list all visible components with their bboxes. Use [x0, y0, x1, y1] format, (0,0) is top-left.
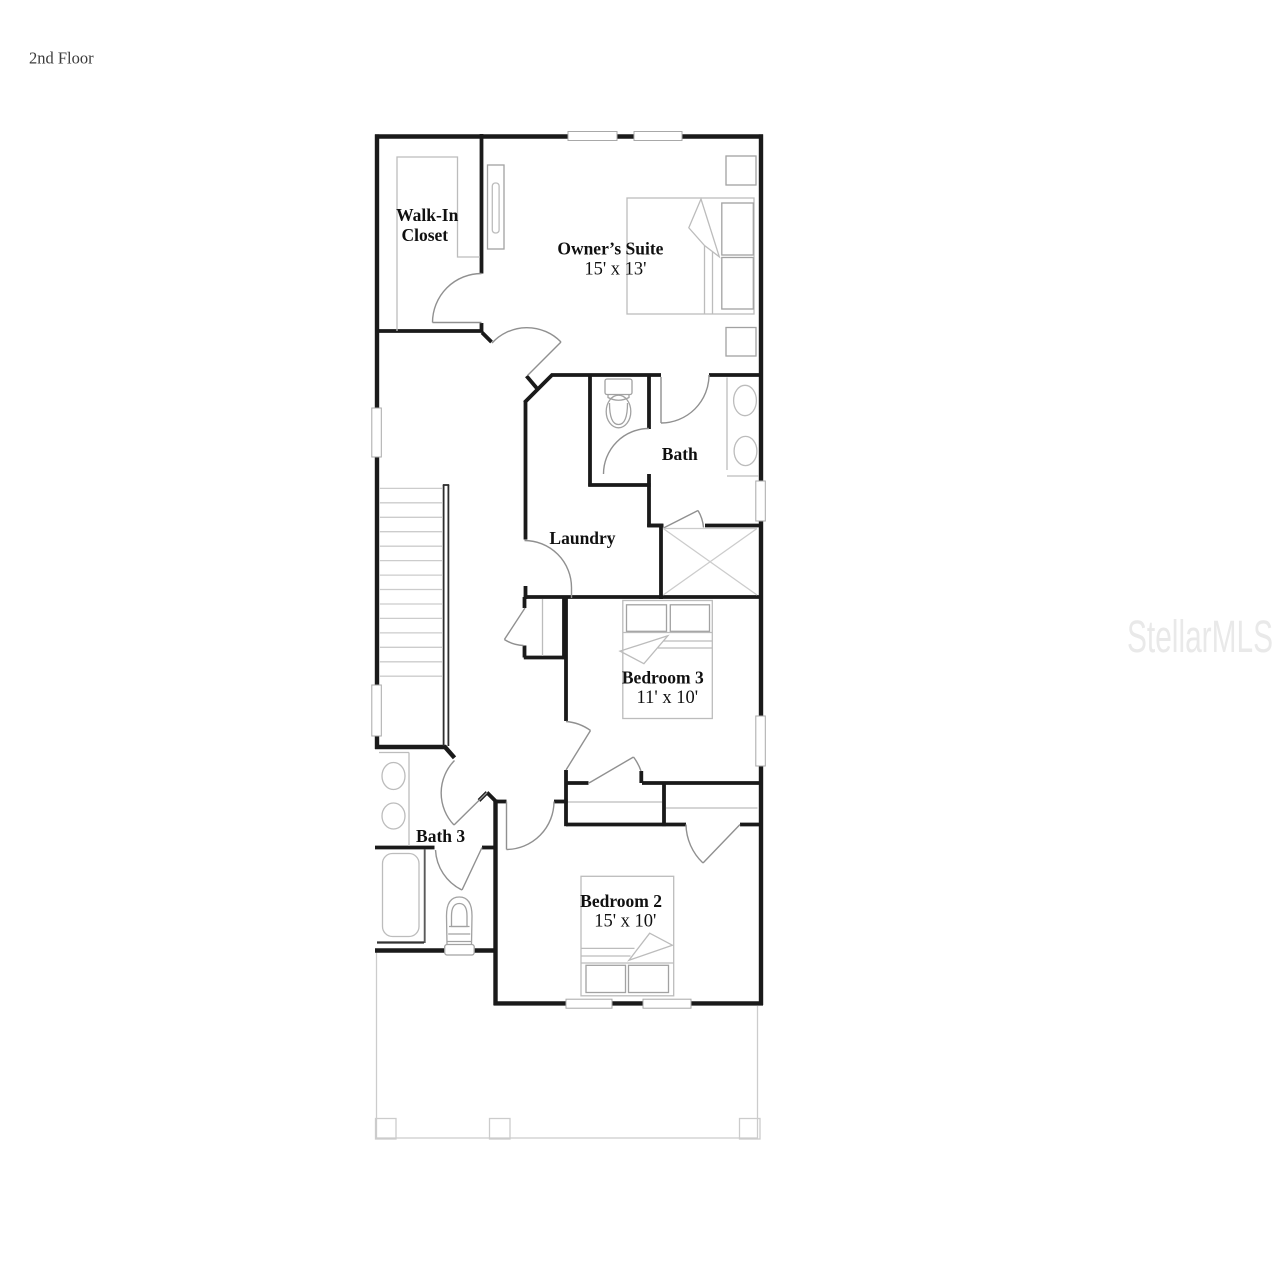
- svg-text:Bath 3: Bath 3: [416, 826, 465, 846]
- svg-text:Bath: Bath: [662, 444, 698, 464]
- svg-text:2nd Floor: 2nd Floor: [29, 49, 94, 68]
- svg-text:Walk-In: Walk-In: [396, 205, 459, 225]
- svg-text:15' x 10': 15' x 10': [594, 912, 656, 932]
- svg-text:Bedroom 2: Bedroom 2: [580, 891, 662, 911]
- svg-text:Laundry: Laundry: [549, 528, 615, 548]
- svg-text:Owner’s Suite: Owner’s Suite: [557, 238, 663, 258]
- svg-text:11' x 10': 11' x 10': [637, 688, 698, 708]
- svg-text:Bedroom 3: Bedroom 3: [622, 668, 704, 688]
- svg-text:15' x 13': 15' x 13': [584, 259, 646, 279]
- svg-text:StellarMLS: StellarMLS: [1127, 611, 1273, 662]
- svg-text:Closet: Closet: [401, 225, 448, 245]
